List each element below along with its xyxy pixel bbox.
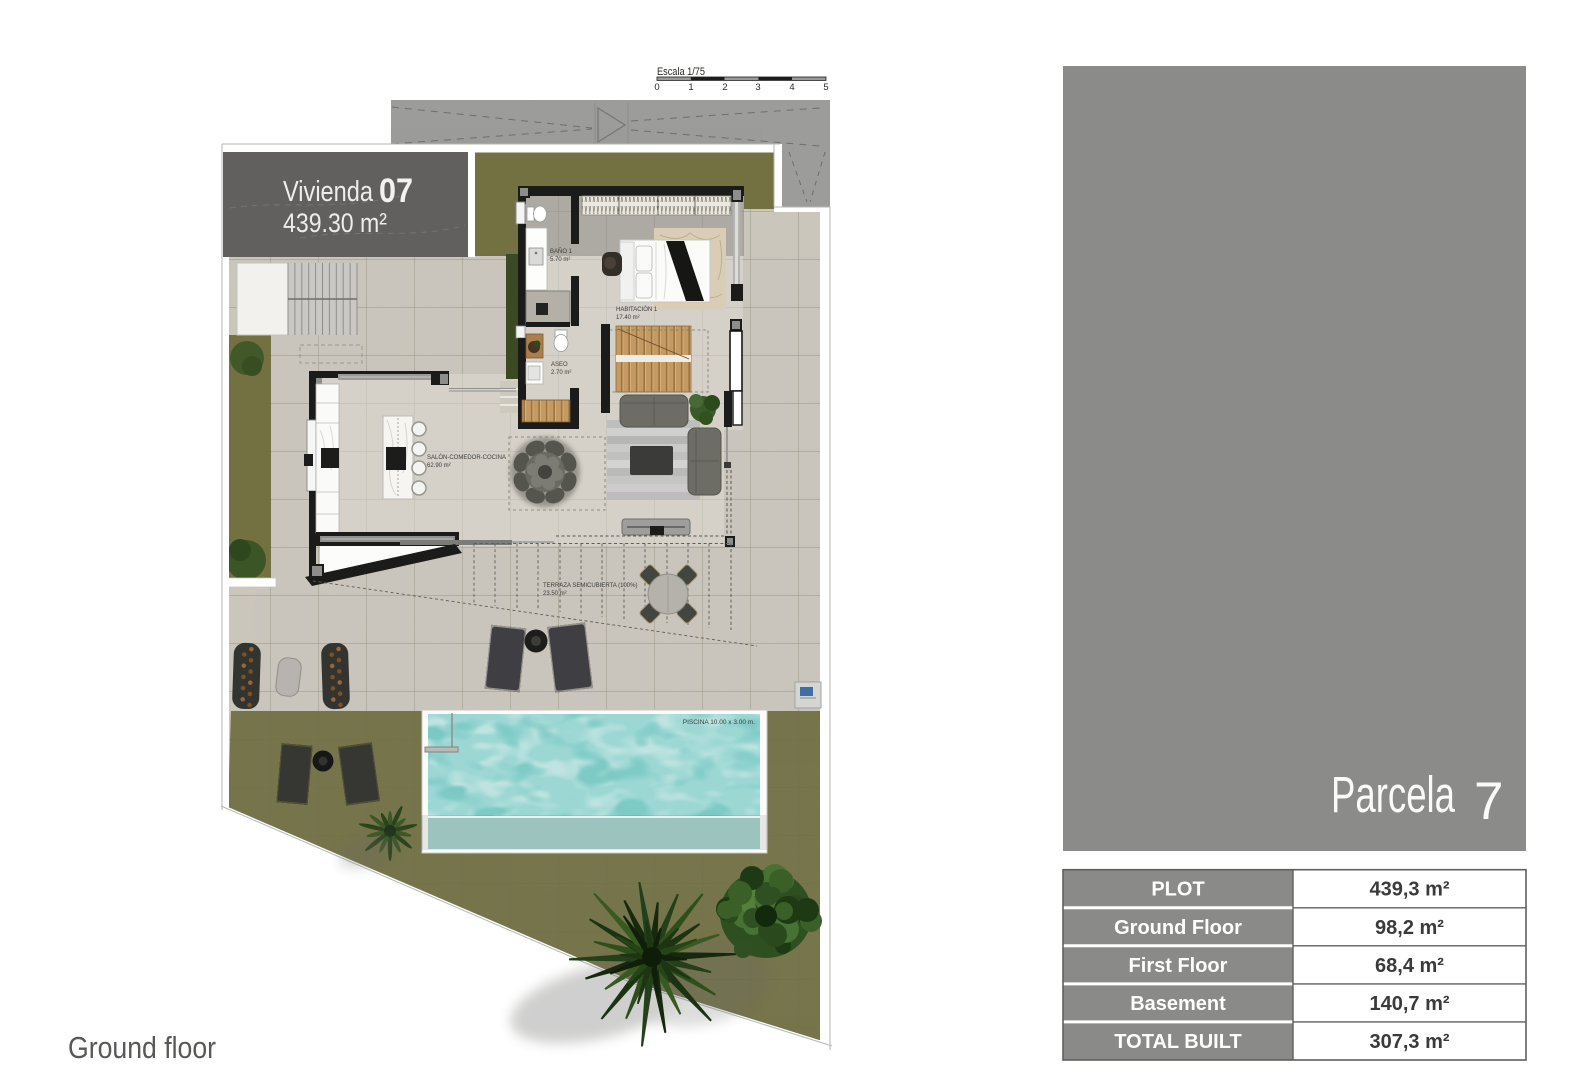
svg-text:439.30 m²: 439.30 m² — [283, 208, 387, 238]
svg-text:Vivienda: Vivienda — [283, 176, 374, 208]
svg-text:62.90 m²: 62.90 m² — [427, 463, 451, 469]
svg-text:BAÑO 1: BAÑO 1 — [550, 248, 573, 255]
svg-text:439,3 m²: 439,3 m² — [1369, 879, 1449, 901]
svg-text:0: 0 — [654, 82, 659, 93]
svg-text:PLOT: PLOT — [1151, 879, 1204, 901]
svg-text:23.50 m²: 23.50 m² — [543, 591, 567, 597]
svg-text:7: 7 — [1474, 772, 1503, 831]
svg-text:SALÓN-COMEDOR-COCINA: SALÓN-COMEDOR-COCINA — [427, 454, 506, 461]
svg-text:TOTAL BUILT: TOTAL BUILT — [1114, 1031, 1241, 1053]
svg-text:3: 3 — [755, 82, 760, 93]
svg-text:5: 5 — [823, 82, 828, 93]
svg-text:07: 07 — [379, 172, 413, 210]
svg-text:TERRAZA SEMICUBIERTA (100%): TERRAZA SEMICUBIERTA (100%) — [543, 583, 637, 589]
svg-text:4: 4 — [789, 82, 794, 93]
svg-text:2.70 m²: 2.70 m² — [551, 370, 571, 376]
svg-text:Ground floor: Ground floor — [68, 1030, 216, 1065]
svg-text:307,3 m²: 307,3 m² — [1369, 1031, 1449, 1053]
svg-text:1: 1 — [688, 82, 693, 93]
svg-text:PISCINA 10.00 x 3.00 m.: PISCINA 10.00 x 3.00 m. — [683, 719, 755, 726]
svg-text:5.70 m²: 5.70 m² — [550, 257, 570, 263]
svg-text:2: 2 — [722, 82, 727, 93]
svg-text:140,7 m²: 140,7 m² — [1369, 993, 1449, 1015]
svg-text:Escala 1/75: Escala 1/75 — [657, 66, 705, 78]
svg-text:Ground Floor: Ground Floor — [1114, 917, 1242, 939]
svg-text:ASEO: ASEO — [551, 362, 568, 368]
svg-text:First Floor: First Floor — [1129, 955, 1228, 977]
svg-text:Basement: Basement — [1130, 993, 1226, 1015]
svg-text:Parcela: Parcela — [1331, 766, 1455, 823]
svg-text:68,4 m²: 68,4 m² — [1375, 955, 1444, 977]
svg-text:HABITACIÓN 1: HABITACIÓN 1 — [616, 306, 658, 313]
svg-text:98,2 m²: 98,2 m² — [1375, 917, 1444, 939]
svg-text:17.40 m²: 17.40 m² — [616, 315, 640, 321]
